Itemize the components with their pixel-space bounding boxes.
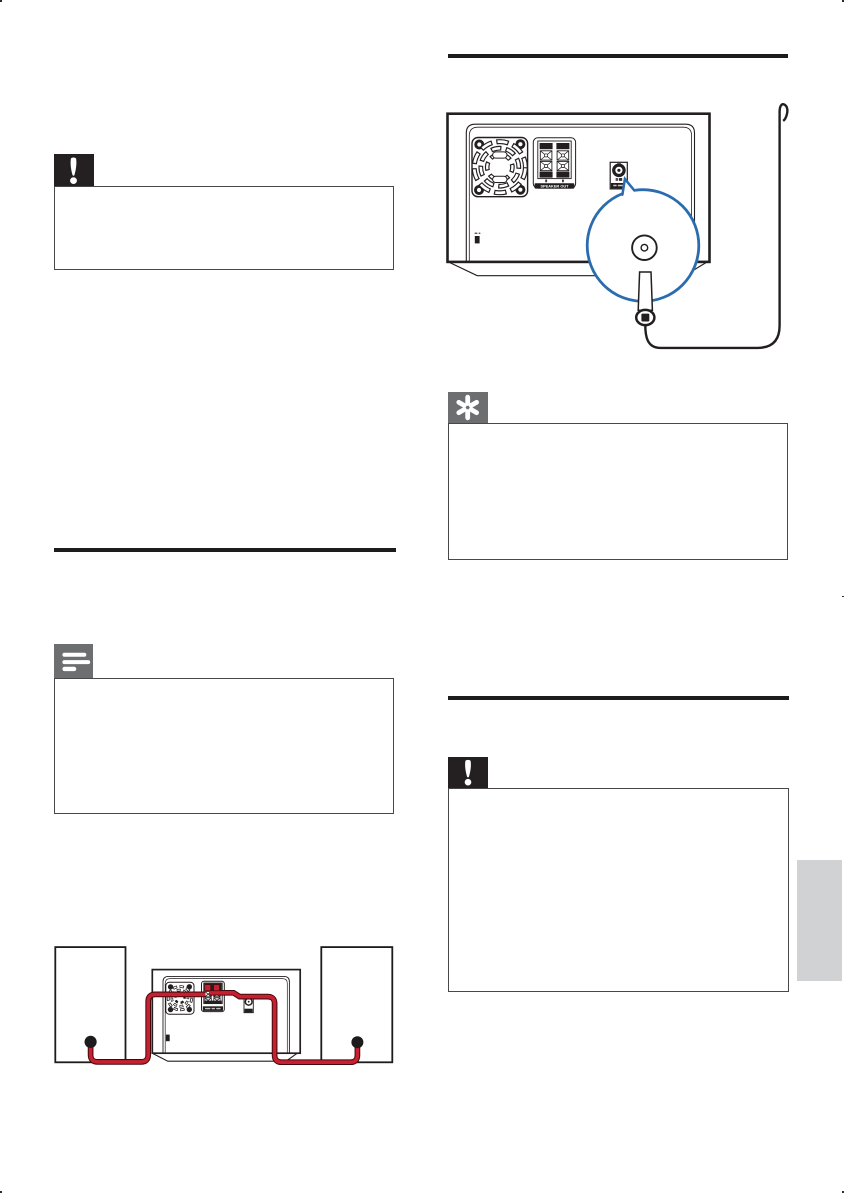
- svg-text:SPEAKER OUT: SPEAKER OUT: [540, 183, 569, 188]
